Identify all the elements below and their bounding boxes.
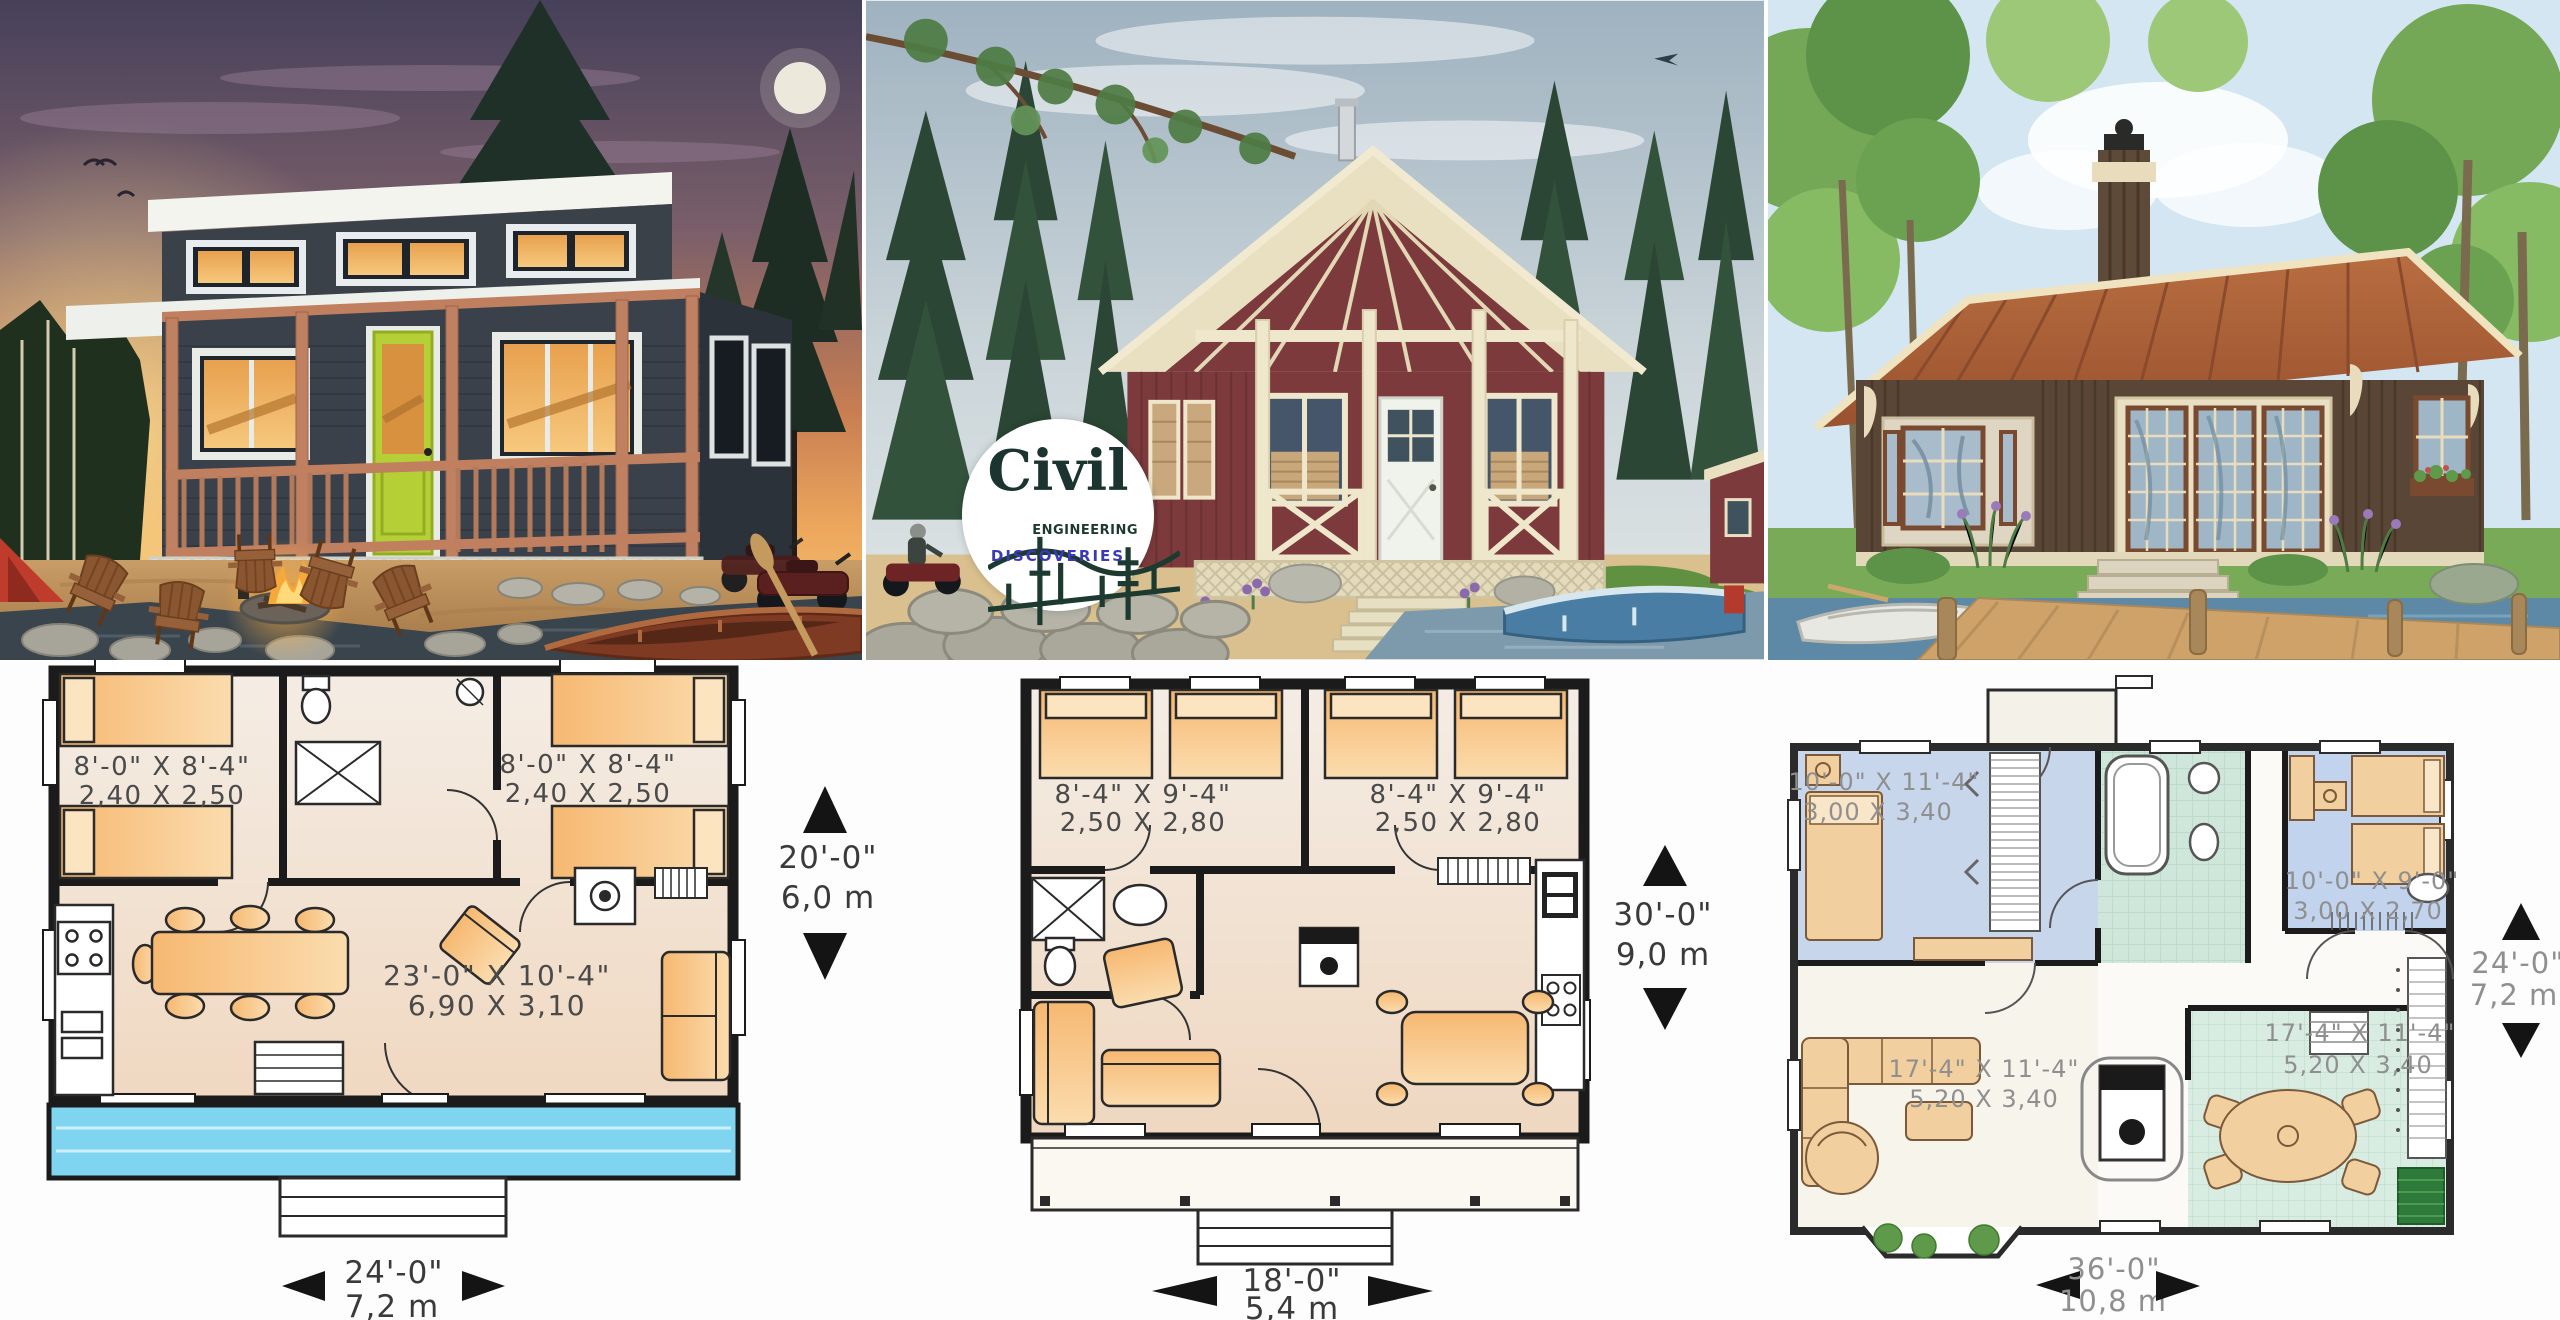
bedroom-right-metric: 2,40 X 2,50 — [505, 779, 672, 809]
width-imperial: 24'-0" — [344, 1255, 443, 1291]
bedroom-right-imperial: 8'-4" X 9'-4" — [1370, 780, 1547, 810]
width-metric: 7,2 m — [345, 1289, 439, 1320]
living-metric: 6,90 X 3,10 — [408, 989, 586, 1022]
depth-metric: 7,2 m — [2470, 978, 2559, 1012]
width-dimension: 24'-0" 7,2 m — [282, 1255, 505, 1320]
dining-set — [2202, 1087, 2382, 1196]
depth-dimension: 30'-0" 9,0 m — [1613, 845, 1712, 1030]
width-dimension: 36'-0" 10,8 m — [2036, 1252, 2200, 1318]
bedroom-right-imperial: 10'-0" X 9'-0" — [2285, 867, 2460, 895]
front-window-left — [192, 348, 310, 460]
arrow-right-icon — [2156, 1271, 2200, 1301]
front-door — [366, 326, 440, 560]
porch-window-right — [1485, 396, 1555, 504]
bedroom-left-imperial: 8'-0" X 8'-4" — [74, 752, 251, 782]
bedroom-right-metric: 3,00 X 2,70 — [2293, 897, 2443, 925]
arrow-up-icon — [2502, 903, 2540, 940]
arrow-right-icon — [462, 1271, 505, 1301]
bedroom-left-metric: 3,00 X 3,40 — [1803, 798, 1953, 826]
porch-door — [1380, 398, 1442, 562]
right-window — [2410, 398, 2474, 496]
depth-dimension: 24'-0" 7,2 m — [2470, 903, 2560, 1058]
bedroom-left-imperial: 8'-4" X 9'-4" — [1055, 780, 1232, 810]
dining-metric: 5,20 X 3,40 — [2283, 1051, 2433, 1079]
outboard-motor — [1724, 585, 1744, 613]
floor-plan-b: 8'-4" X 9'-4" 2,50 X 2,80 8'-4" X 9'-4" … — [1000, 660, 1780, 1320]
width-metric: 5,4 m — [1245, 1291, 1339, 1320]
lake-cabin-scene — [1768, 0, 2560, 660]
dining-imperial: 17'-4" X 11'-4" — [2265, 1019, 2456, 1047]
kitchen — [55, 905, 113, 1095]
arrow-left-icon — [1152, 1276, 1217, 1306]
sunset-cabin-scene — [0, 0, 862, 660]
civil-engineering-discoveries-logo: Civil ENGINEERING DISCOVERIES — [962, 419, 1154, 611]
depth-metric: 9,0 m — [1616, 937, 1710, 973]
living-metric: 5,20 X 3,40 — [1909, 1085, 2059, 1113]
porch-window-left — [1265, 396, 1345, 504]
floor-plan-c: 10'-0" X 11'-4" 3,00 X 3,40 10'-0" X 9'-… — [1780, 660, 2560, 1320]
french-doors — [2116, 398, 2331, 558]
porch-steps — [1198, 1210, 1392, 1264]
second-cabin — [1704, 450, 1764, 584]
photo-modern-cabin-sunset — [0, 0, 862, 660]
floor-plans-row: 8'-0" X 8'-4" 2,40 X 2,50 8'-0" X 8'-4" … — [0, 660, 2560, 1320]
boulder — [2430, 564, 2518, 604]
depth-imperial: 24'-0" — [2471, 946, 2560, 980]
arrow-right-icon — [1368, 1276, 1433, 1306]
depth-imperial: 20'-0" — [778, 840, 877, 876]
dresser — [255, 1042, 343, 1094]
bay-window-plants — [1862, 1224, 2022, 1258]
arrow-down-icon — [2502, 1023, 2540, 1058]
bedroom-right-imperial: 8'-0" X 8'-4" — [500, 750, 677, 780]
front-porch — [1032, 1138, 1578, 1210]
arrow-down-icon — [1643, 988, 1687, 1030]
wood-stove — [1300, 928, 1358, 986]
logo-engineering-text: ENGINEERING — [1032, 523, 1138, 538]
arrow-up-icon — [803, 786, 847, 833]
living-imperial: 23'-0" X 10'-4" — [383, 959, 611, 992]
width-metric: 10,8 m — [2059, 1284, 2167, 1318]
collage: Civil ENGINEERING DISCOVERIES — [0, 0, 2560, 1320]
entry-stoop — [1988, 676, 2152, 747]
bedroom-right-metric: 2,50 X 2,80 — [1375, 808, 1542, 838]
width-dimension: 18'-0" 5,4 m — [1152, 1263, 1433, 1320]
floor-plan-a: 8'-0" X 8'-4" 2,40 X 2,50 8'-0" X 8'-4" … — [0, 660, 1000, 1320]
living-imperial: 17'-4" X 11'-4" — [1889, 1055, 2080, 1083]
side-window — [712, 338, 746, 456]
logo-discoveries-text: DISCOVERIES — [962, 547, 1154, 565]
depth-metric: 6,0 m — [781, 880, 875, 916]
waterfront-deck — [49, 1105, 738, 1178]
sofa — [662, 952, 730, 1080]
bridge-icon — [988, 485, 1180, 660]
width-imperial: 36'-0" — [2067, 1252, 2160, 1286]
bedroom-left-metric: 2,40 X 2,50 — [79, 781, 246, 811]
photo-red-cottage-lake: Civil ENGINEERING DISCOVERIES — [866, 0, 1764, 660]
porch-header — [1195, 330, 1580, 342]
moon-halo — [760, 48, 840, 128]
depth-imperial: 30'-0" — [1613, 897, 1712, 933]
deck-steps — [280, 1178, 506, 1236]
arrow-down-icon — [803, 933, 847, 980]
arrow-up-icon — [1643, 845, 1687, 886]
arrow-left-icon — [282, 1271, 325, 1301]
bedroom-left-metric: 2,50 X 2,80 — [1060, 808, 1227, 838]
chimney-pipe — [1339, 105, 1355, 161]
bay-window — [1883, 418, 2033, 545]
bedroom-left-imperial: 10'-0" X 11'-4" — [1789, 768, 1980, 796]
depth-dimension: 20'-0" 6,0 m — [778, 786, 877, 980]
photo-brown-cabin-dock — [1768, 0, 2560, 660]
side-window — [754, 346, 788, 464]
